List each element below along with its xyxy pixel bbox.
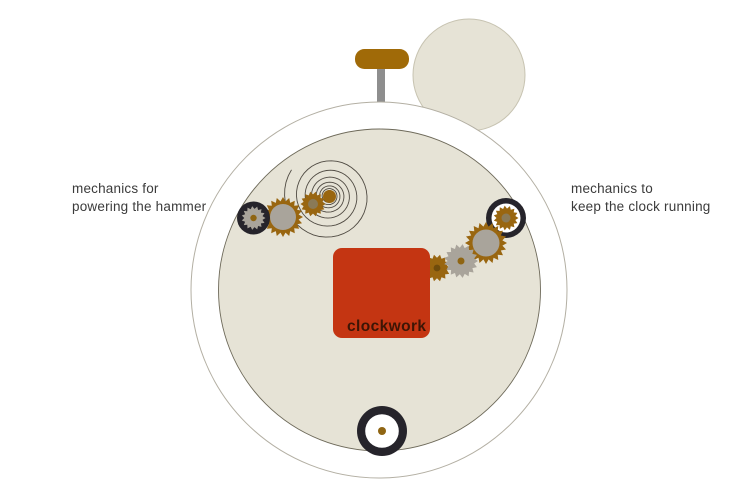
clockwork-label: clockwork (347, 318, 426, 335)
label-line: keep the clock running (571, 199, 711, 214)
label-line: mechanics for (72, 181, 159, 196)
gear-hub (250, 215, 256, 221)
gear-hub (434, 265, 441, 272)
label-powering-hammer: mechanics for powering the hammer (72, 180, 206, 215)
label-line: powering the hammer (72, 199, 206, 214)
balance-wheel-hub (378, 427, 386, 435)
gear-hub (458, 258, 465, 265)
alarm-clock-diagram: clockwork mechanics for powering the ham… (0, 0, 750, 500)
balance-wheel (357, 406, 407, 456)
label-keep-clock-running: mechanics to keep the clock running (571, 180, 711, 215)
clock-illustration: clockwork (0, 0, 750, 500)
spiral-hub (323, 190, 336, 203)
label-line: mechanics to (571, 181, 653, 196)
gear-inner-disc (473, 230, 500, 257)
gear-hub (308, 199, 318, 209)
hammer-knob (355, 49, 409, 69)
gear-hub (502, 214, 511, 223)
gear-inner-disc (270, 204, 296, 230)
